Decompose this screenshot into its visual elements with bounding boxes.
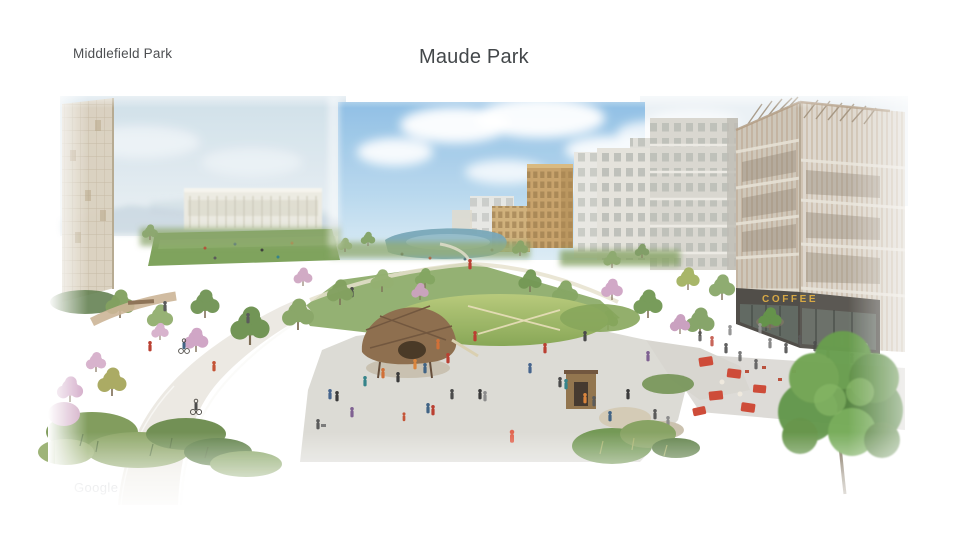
- edge-fades: [0, 0, 970, 545]
- park-rendering: COFFEE: [0, 0, 970, 545]
- page: Middlefield Park Maude Park Google: [0, 0, 970, 545]
